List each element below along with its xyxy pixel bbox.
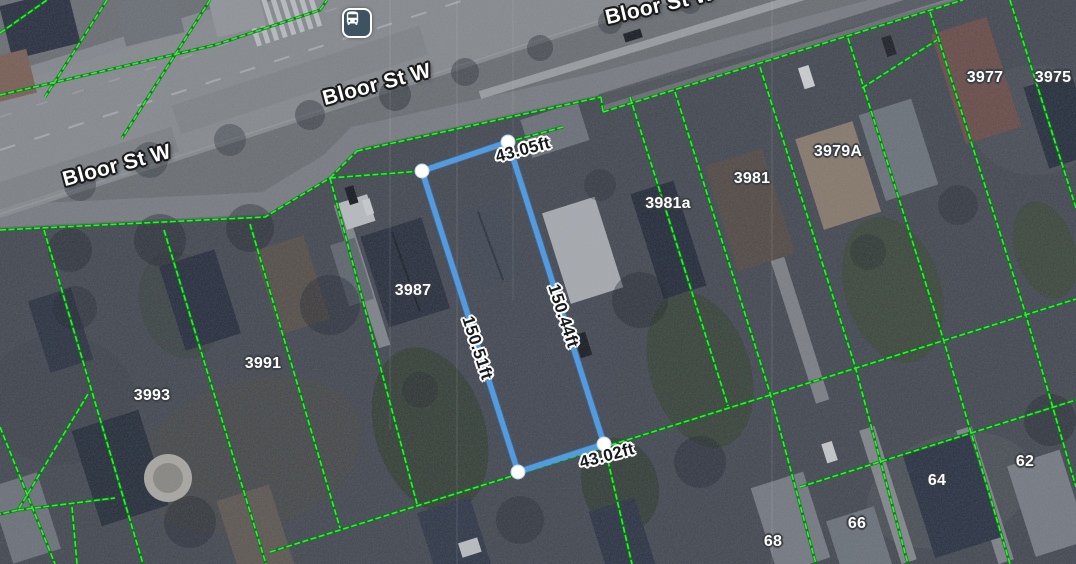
satellite-imagery: [0, 0, 1076, 564]
map-canvas[interactable]: Bloor St W Bloor St W Bloor St W 3993 39…: [0, 0, 1076, 564]
grain-overlay: [0, 0, 1076, 564]
measure-vertex-bottomright[interactable]: [597, 437, 611, 451]
measure-vertex-bottomleft[interactable]: [511, 465, 525, 479]
measure-vertex-topleft[interactable]: [415, 164, 429, 178]
bus-glyph: [344, 10, 361, 27]
bus-station-icon[interactable]: [342, 8, 372, 38]
measure-vertex-topright[interactable]: [501, 135, 515, 149]
